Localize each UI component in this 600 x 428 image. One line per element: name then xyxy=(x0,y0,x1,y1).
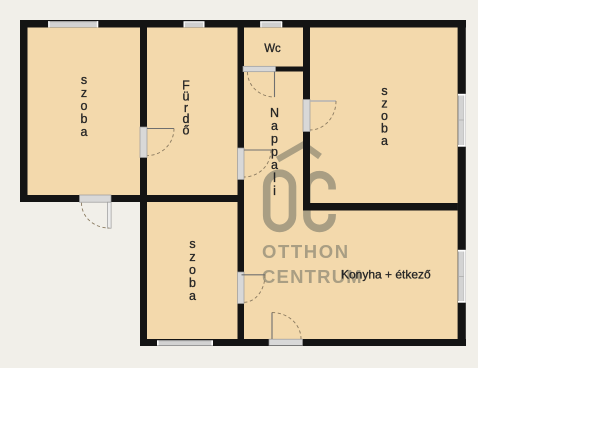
svg-text:N: N xyxy=(270,106,279,120)
svg-text:ő: ő xyxy=(183,123,190,137)
svg-text:z: z xyxy=(81,86,87,100)
svg-text:Konyha + étkező: Konyha + étkező xyxy=(341,268,431,282)
svg-text:b: b xyxy=(81,112,88,126)
svg-text:b: b xyxy=(189,276,196,290)
svg-text:OTTHON: OTTHON xyxy=(262,241,350,262)
svg-text:a: a xyxy=(271,119,278,133)
svg-text:l: l xyxy=(273,171,276,185)
svg-text:o: o xyxy=(81,99,88,113)
svg-text:a: a xyxy=(271,158,278,172)
svg-text:o: o xyxy=(189,263,196,277)
svg-text:p: p xyxy=(271,145,278,159)
svg-text:s: s xyxy=(189,237,195,251)
svg-text:a: a xyxy=(81,125,88,139)
svg-text:s: s xyxy=(81,73,87,87)
svg-text:i: i xyxy=(273,184,276,198)
svg-text:a: a xyxy=(381,134,388,148)
svg-text:p: p xyxy=(271,132,278,146)
svg-text:a: a xyxy=(189,289,196,303)
svg-text:Wc: Wc xyxy=(264,43,281,55)
svg-text:z: z xyxy=(189,250,195,264)
